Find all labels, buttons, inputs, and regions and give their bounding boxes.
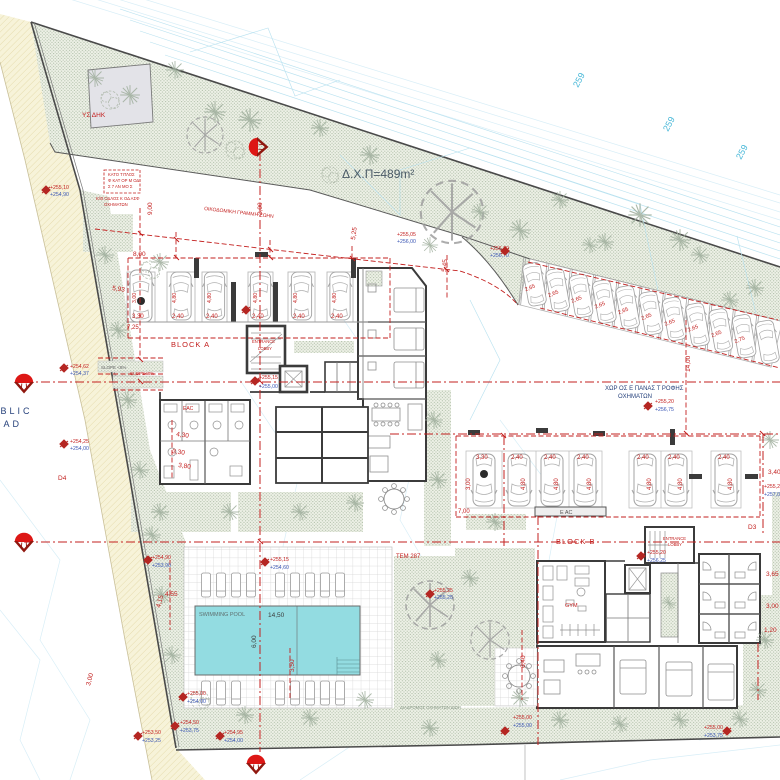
svg-text:+254,90: +254,90 — [50, 192, 69, 198]
svg-text:ENTRANCE: ENTRANCE — [252, 339, 275, 344]
svg-text:+254,00: +254,00 — [224, 738, 243, 744]
svg-text:+256,00: +256,00 — [397, 239, 416, 245]
svg-text:2,40: 2,40 — [293, 314, 305, 320]
svg-text:+255,00: +255,00 — [513, 715, 532, 721]
svg-text:+254,62: +254,62 — [70, 364, 89, 370]
svg-text:Δ.Χ.Π=489m²: Δ.Χ.Π=489m² — [342, 167, 414, 181]
svg-text:Σ 7 ΑΝ ΜΟ Σ: Σ 7 ΑΝ ΜΟ Σ — [108, 184, 133, 189]
svg-text:SLOPE<8%: SLOPE<8% — [130, 371, 154, 376]
svg-text:+253,50: +253,50 — [142, 730, 161, 736]
svg-text:+254,95: +254,95 — [224, 730, 243, 736]
svg-text:BLOCK A: BLOCK A — [171, 340, 210, 349]
svg-text:PUBLIC: PUBLIC — [0, 406, 33, 416]
svg-text:4,80: 4,80 — [332, 293, 338, 303]
svg-text:E AC: E AC — [560, 510, 573, 516]
svg-text:+254,37: +254,37 — [70, 371, 89, 377]
svg-text:+257,00: +257,00 — [764, 492, 780, 498]
svg-text:3,30: 3,30 — [132, 314, 144, 320]
svg-text:14,50: 14,50 — [268, 612, 285, 619]
svg-text:+255,20: +255,20 — [647, 550, 666, 556]
svg-text:9,00: 9,00 — [147, 202, 154, 215]
svg-text:Φ ΚΑΤ ΟΡ Μ ΟΔ: Φ ΚΑΤ ΟΡ Μ ΟΔ — [108, 178, 139, 183]
svg-text:EAC: EAC — [183, 406, 194, 412]
svg-text:14,00: 14,00 — [685, 355, 692, 372]
svg-text:+254,00: +254,00 — [70, 446, 89, 452]
svg-text:4,80: 4,80 — [728, 478, 734, 490]
svg-text:ΟΧΗΜΑΤΩΝ: ΟΧΗΜΑΤΩΝ — [104, 202, 128, 207]
svg-text:2,40: 2,40 — [668, 455, 680, 461]
svg-text:4,80: 4,80 — [172, 293, 178, 303]
svg-text:+254,90: +254,90 — [152, 555, 171, 561]
svg-text:2,40: 2,40 — [331, 314, 343, 320]
svg-text:BLOCK B: BLOCK B — [556, 537, 596, 546]
svg-text:+255,20: +255,20 — [764, 484, 780, 490]
svg-text:ΔΙΑΔΡΟΜΟΣ ΟΧΗΜΑΤΩΝ ΔΙΩΗ: ΔΙΑΔΡΟΜΟΣ ΟΧΗΜΑΤΩΝ ΔΙΩΗ — [400, 705, 461, 710]
svg-text:+255,20: +255,20 — [655, 399, 674, 405]
svg-text:+255,25: +255,25 — [434, 588, 453, 594]
svg-text:4,80: 4,80 — [587, 478, 593, 490]
svg-text:+255,25: +255,25 — [434, 595, 453, 601]
svg-text:3,00: 3,00 — [132, 293, 138, 303]
svg-text:7,25: 7,25 — [127, 325, 139, 331]
svg-text:ROAD: ROAD — [0, 419, 22, 429]
svg-text:1,20: 1,20 — [764, 627, 777, 634]
svg-text:+254,50: +254,50 — [180, 720, 199, 726]
svg-text:4,80: 4,80 — [678, 478, 684, 490]
svg-text:2,40: 2,40 — [206, 314, 218, 320]
svg-text:+255,10: +255,10 — [50, 185, 69, 191]
svg-text:ΤΕΜ 287: ΤΕΜ 287 — [396, 554, 421, 560]
svg-text:ΥΣ ΔΗΚ: ΥΣ ΔΗΚ — [82, 112, 106, 119]
svg-text:+253,75: +253,75 — [704, 733, 723, 739]
svg-text:2,40: 2,40 — [511, 455, 523, 461]
svg-text:7,00: 7,00 — [458, 509, 470, 515]
svg-text:+255,00: +255,00 — [259, 384, 278, 390]
svg-text:GYM: GYM — [565, 603, 578, 609]
svg-text:+255,00: +255,00 — [187, 691, 206, 697]
svg-text:3,00: 3,00 — [766, 603, 779, 610]
svg-text:3,00: 3,00 — [257, 202, 264, 215]
svg-text:4,80: 4,80 — [253, 293, 259, 303]
svg-text:4,80: 4,80 — [521, 478, 527, 490]
svg-text:3,65: 3,65 — [766, 571, 779, 578]
svg-text:+253,90: +253,90 — [152, 563, 171, 569]
svg-text:2,40: 2,40 — [718, 455, 730, 461]
svg-text:+254,25: +254,25 — [70, 439, 89, 445]
svg-text:SWIMMING POOL: SWIMMING POOL — [199, 612, 245, 618]
svg-text:3,30: 3,30 — [476, 455, 488, 461]
svg-text:6,00: 6,00 — [251, 635, 258, 648]
svg-text:ENTRANCE: ENTRANCE — [663, 536, 686, 541]
svg-text:4,80: 4,80 — [293, 293, 299, 303]
svg-text:3,40: 3,40 — [768, 469, 780, 476]
svg-text:4,80: 4,80 — [554, 478, 560, 490]
svg-text:2,40: 2,40 — [544, 455, 556, 461]
svg-text:3,00: 3,00 — [466, 478, 472, 490]
svg-text:D3: D3 — [748, 524, 757, 531]
svg-text:5,45: 5,45 — [441, 259, 449, 273]
svg-text:+253,75: +253,75 — [180, 728, 199, 734]
svg-text:+253,25: +253,25 — [142, 738, 161, 744]
svg-text:+254,60: +254,60 — [270, 565, 289, 571]
svg-text:LOBBY: LOBBY — [258, 346, 272, 351]
svg-text:+255,15: +255,15 — [270, 557, 289, 563]
svg-text:2,40: 2,40 — [577, 455, 589, 461]
svg-text:+256,75: +256,75 — [655, 407, 674, 413]
svg-text:+255,15: +255,15 — [259, 375, 278, 381]
svg-text:Κ/Θ ΟΔΛΟΣ Κ ΟΔ ΑΣΦ: Κ/Θ ΟΔΛΟΣ Κ ΟΔ ΑΣΦ — [96, 196, 140, 201]
svg-text:3,50: 3,50 — [289, 659, 296, 672]
svg-text:SLOPE <8%: SLOPE <8% — [101, 365, 126, 370]
svg-text:8,00: 8,00 — [133, 251, 146, 258]
svg-text:4,55: 4,55 — [165, 591, 178, 598]
svg-text:4,80: 4,80 — [207, 293, 213, 303]
svg-text:6,40: 6,40 — [520, 655, 527, 668]
svg-text:2,40: 2,40 — [637, 455, 649, 461]
svg-text:ΚΑΤΟ ΤΙΤΛΟΣ: ΚΑΤΟ ΤΙΤΛΟΣ — [108, 172, 135, 177]
svg-text:+255,05: +255,05 — [397, 232, 416, 238]
svg-text:+255,00: +255,00 — [704, 725, 723, 731]
svg-text:D4: D4 — [58, 475, 67, 482]
svg-text:ΟΧΗΜΑΤΩΝ: ΟΧΗΜΑΤΩΝ — [618, 394, 652, 400]
svg-text:ΧΩΡ ΟΣ Ε ΠΑΝΑΣ Τ ΡΟΦΗΣ: ΧΩΡ ΟΣ Ε ΠΑΝΑΣ Τ ΡΟΦΗΣ — [605, 386, 684, 392]
svg-text:+255,00: +255,00 — [513, 723, 532, 729]
svg-text:2,40: 2,40 — [252, 314, 264, 320]
svg-text:LOBBY: LOBBY — [668, 542, 682, 547]
svg-text:4,80: 4,80 — [647, 478, 653, 490]
svg-text:+256,25: +256,25 — [647, 558, 666, 564]
svg-text:2,40: 2,40 — [172, 314, 184, 320]
svg-text:+254,00: +254,00 — [187, 699, 206, 705]
